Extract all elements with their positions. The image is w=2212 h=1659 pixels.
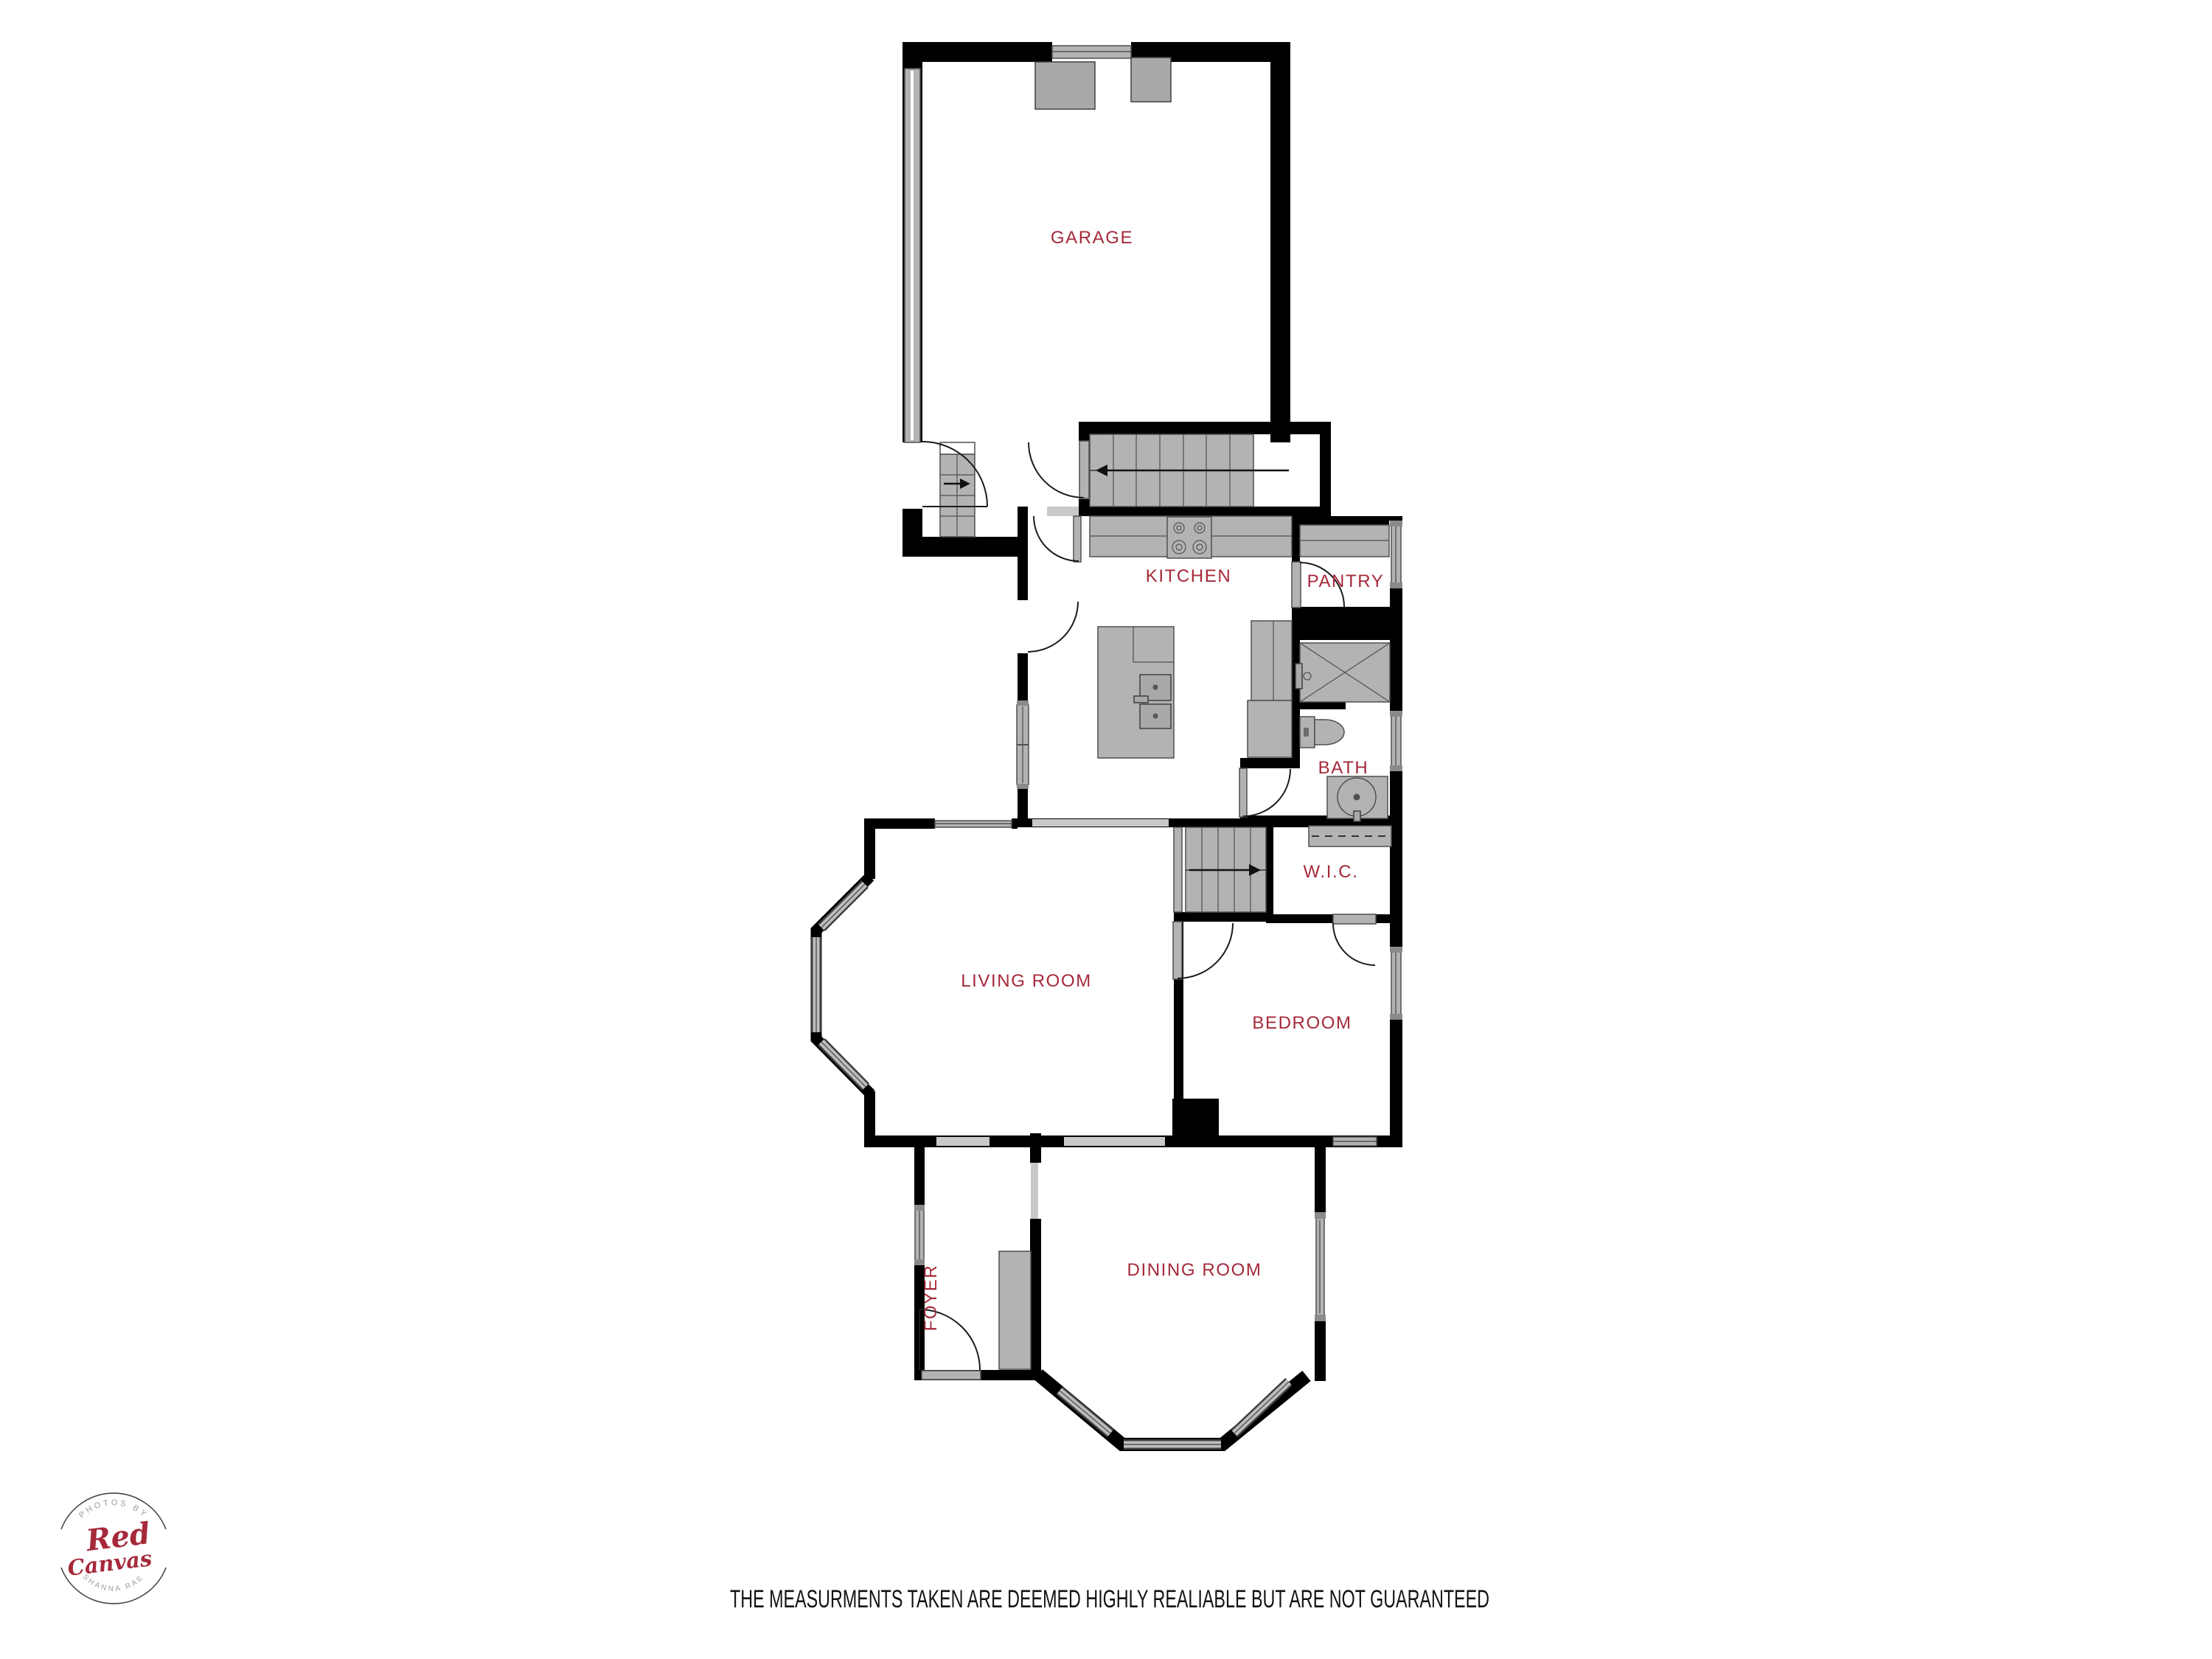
kitchen-island — [1098, 627, 1174, 758]
room-label-wic: W.I.C. — [1304, 862, 1359, 882]
vanity-sink — [1327, 776, 1388, 821]
bedroom-bottom-window — [1333, 1137, 1377, 1146]
room-label-garage: GARAGE — [1051, 228, 1133, 248]
pantry-window — [1389, 521, 1403, 588]
garage-top-window — [1052, 46, 1131, 58]
disclaimer-text: THE MEASURMENTS TAKEN ARE DEEMED HIGHLY … — [730, 1585, 1489, 1613]
room-label-bedroom: BEDROOM — [1252, 1013, 1352, 1033]
room-label-dining: DINING ROOM — [1127, 1260, 1262, 1280]
page-background — [0, 0, 2212, 1659]
kitchen-windows — [1017, 700, 1029, 789]
room-label-kitchen: KITCHEN — [1146, 566, 1232, 586]
floor-plan: GARAGE KITCHEN PANTRY BATH W.I.C. LIVING… — [0, 0, 2212, 1659]
garage-steps — [940, 442, 975, 537]
bedroom-right-window — [1389, 947, 1403, 1020]
foyer-window — [914, 1205, 925, 1265]
room-label-foyer: FOYER — [921, 1265, 941, 1332]
living-top-window — [935, 821, 1012, 827]
bath-window — [1389, 711, 1403, 771]
shower — [1295, 643, 1390, 702]
wic-closet-rod — [1309, 826, 1391, 846]
room-label-living: LIVING ROOM — [961, 971, 1092, 991]
dining-window — [1314, 1212, 1326, 1321]
room-label-bath: BATH — [1318, 758, 1369, 778]
stove — [1167, 517, 1211, 558]
garage-door-window — [905, 69, 920, 442]
pantry-shelves — [1300, 525, 1389, 557]
garage-storage-1 — [1035, 62, 1095, 109]
foyer-closet — [999, 1251, 1031, 1369]
garage-storage-2 — [1131, 58, 1171, 102]
upper-staircase — [1174, 827, 1266, 912]
kitchen-cabinets — [1248, 621, 1292, 757]
room-label-pantry: PANTRY — [1307, 571, 1385, 591]
